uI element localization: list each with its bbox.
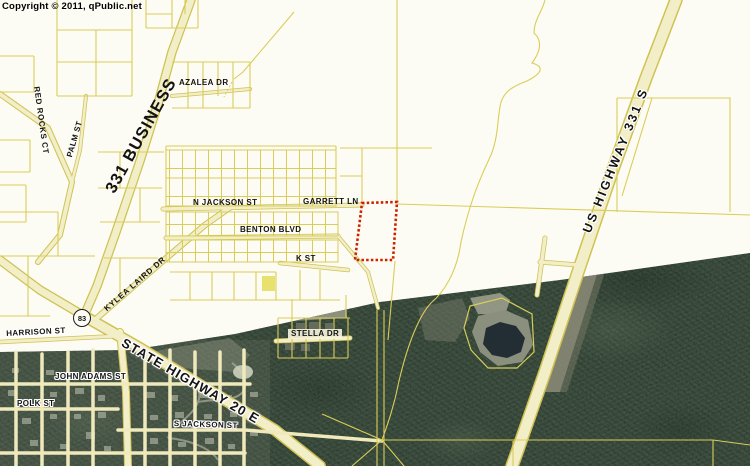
street-label-benton-blvd: BENTON BLVD: [240, 226, 301, 234]
street-label-azalea-dr: AZALEA DR: [179, 79, 229, 87]
street-label-stella-dr: STELLA DR: [288, 329, 342, 339]
route-83-shield: 83: [73, 309, 91, 327]
highlighted-lot: [262, 276, 275, 291]
map-graphics: [0, 0, 750, 466]
aerial-detail-layer: [0, 250, 750, 466]
street-label-john-adams-st: JOHN ADAMS ST: [55, 373, 126, 381]
road-benton-diag: [338, 236, 378, 308]
parcels-center: [340, 0, 432, 340]
parcels-topleft: [57, 0, 132, 96]
parcel-map[interactable]: Copyright © 2011, qPublic.net RED ROCKS …: [0, 0, 750, 466]
street-label-n-jackson-st: N JACKSON ST: [193, 199, 257, 207]
copyright-notice: Copyright © 2011, qPublic.net: [2, 1, 142, 12]
street-label-garrett-ln: GARRETT LN: [303, 198, 359, 206]
route-83-number: 83: [78, 314, 86, 323]
street-label-polk-st: POLK ST: [17, 400, 54, 408]
selected-parcel-highlight[interactable]: [355, 202, 397, 260]
forest-texture: [0, 250, 750, 466]
subdivision-lot-grid: [166, 150, 338, 291]
garrett-ln-east-line: [397, 204, 750, 215]
street-label-k-st: K ST: [296, 255, 316, 263]
